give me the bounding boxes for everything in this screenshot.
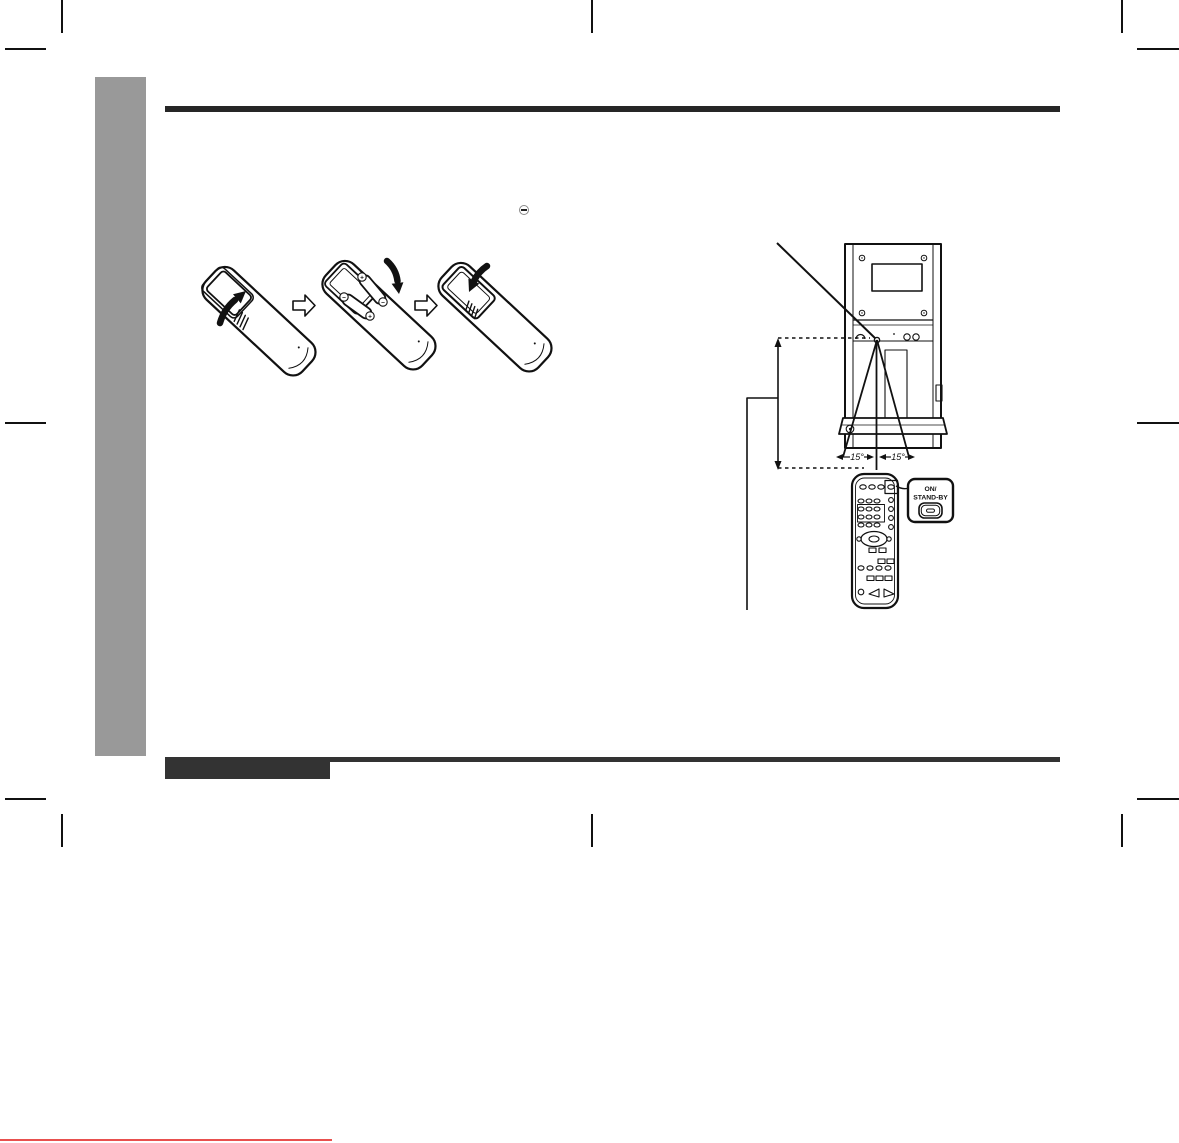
remote-range-diagram: 15° 15° xyxy=(733,228,979,624)
crop-mark xyxy=(1137,798,1179,800)
insert-batteries-step: + − − + xyxy=(317,256,441,375)
manual-page: + − − + xyxy=(0,0,1179,1143)
close-cover-step xyxy=(433,258,557,377)
crop-mark xyxy=(591,814,593,847)
crop-mark xyxy=(61,814,63,847)
footer-rule xyxy=(330,757,1060,762)
battery-plus-icon: + xyxy=(366,312,374,321)
crop-mark xyxy=(1137,48,1179,50)
crop-mark xyxy=(5,48,46,50)
battery-minus-icon: − xyxy=(340,293,348,302)
polarity-plus-label: + xyxy=(360,274,364,281)
remote-control-illustration xyxy=(852,474,898,608)
remote-open-cover-step xyxy=(197,262,321,378)
crop-mark xyxy=(1137,422,1179,424)
svg-text:15°: 15° xyxy=(850,452,864,462)
section-header-rule xyxy=(165,106,1060,112)
insert-arrow-icon xyxy=(387,261,403,294)
callout-label-line2: STAND-BY xyxy=(913,495,948,502)
battery-installation-illustration: + − − + xyxy=(188,243,568,378)
step-arrow-icon xyxy=(415,295,437,316)
crop-mark xyxy=(1121,0,1123,33)
polarity-plus-label: + xyxy=(368,313,372,320)
caption-leader-line xyxy=(747,398,778,610)
distance-arrow xyxy=(775,338,782,470)
polarity-minus-label: − xyxy=(381,299,385,306)
angle-label-right: 15° xyxy=(879,452,915,462)
on-standby-button-icon xyxy=(919,503,942,518)
crop-mark xyxy=(5,798,46,800)
crop-mark xyxy=(1121,814,1123,847)
svg-text:15°: 15° xyxy=(891,452,905,462)
polarity-minus-label: − xyxy=(342,294,346,301)
minus-circle-icon xyxy=(519,205,529,215)
minus-bar xyxy=(521,209,527,211)
crop-mark xyxy=(61,0,63,33)
battery-plus-icon: + xyxy=(358,273,366,282)
red-annotation-line xyxy=(0,1139,332,1141)
section-sidebar-tab xyxy=(95,77,146,756)
crop-mark xyxy=(591,0,593,33)
step-arrow-icon xyxy=(293,295,315,316)
angle-label-left: 15° xyxy=(836,452,874,462)
footer-page-tab xyxy=(165,757,330,779)
callout-label-line1: ON/ xyxy=(924,486,936,493)
on-standby-callout: ON/ STAND-BY xyxy=(896,479,953,522)
battery-minus-icon: − xyxy=(379,298,387,307)
crop-mark xyxy=(5,422,46,424)
